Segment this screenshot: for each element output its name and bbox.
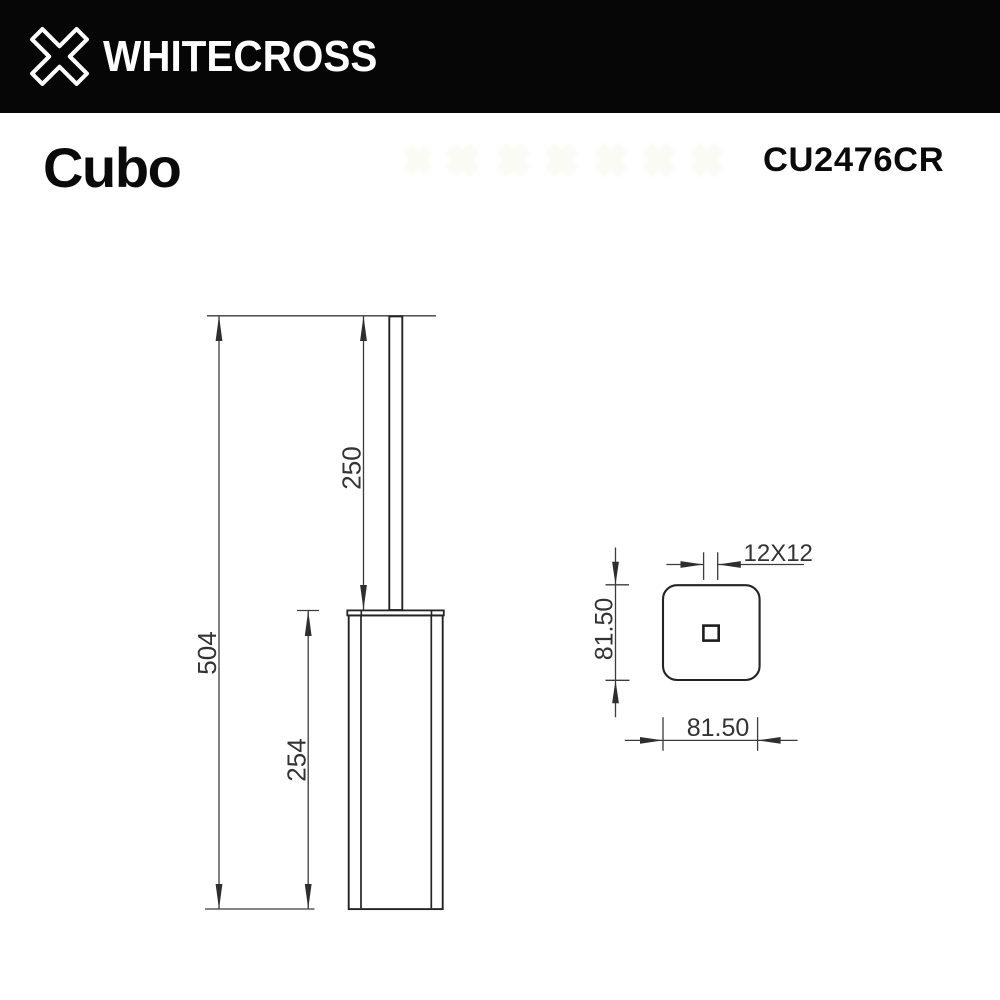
svg-text:81.50: 81.50	[591, 598, 619, 661]
svg-text:254: 254	[281, 738, 311, 781]
svg-text:81.50: 81.50	[687, 714, 750, 742]
svg-text:12X12: 12X12	[744, 540, 813, 567]
svg-text:504: 504	[192, 631, 222, 674]
svg-text:250: 250	[337, 446, 367, 489]
